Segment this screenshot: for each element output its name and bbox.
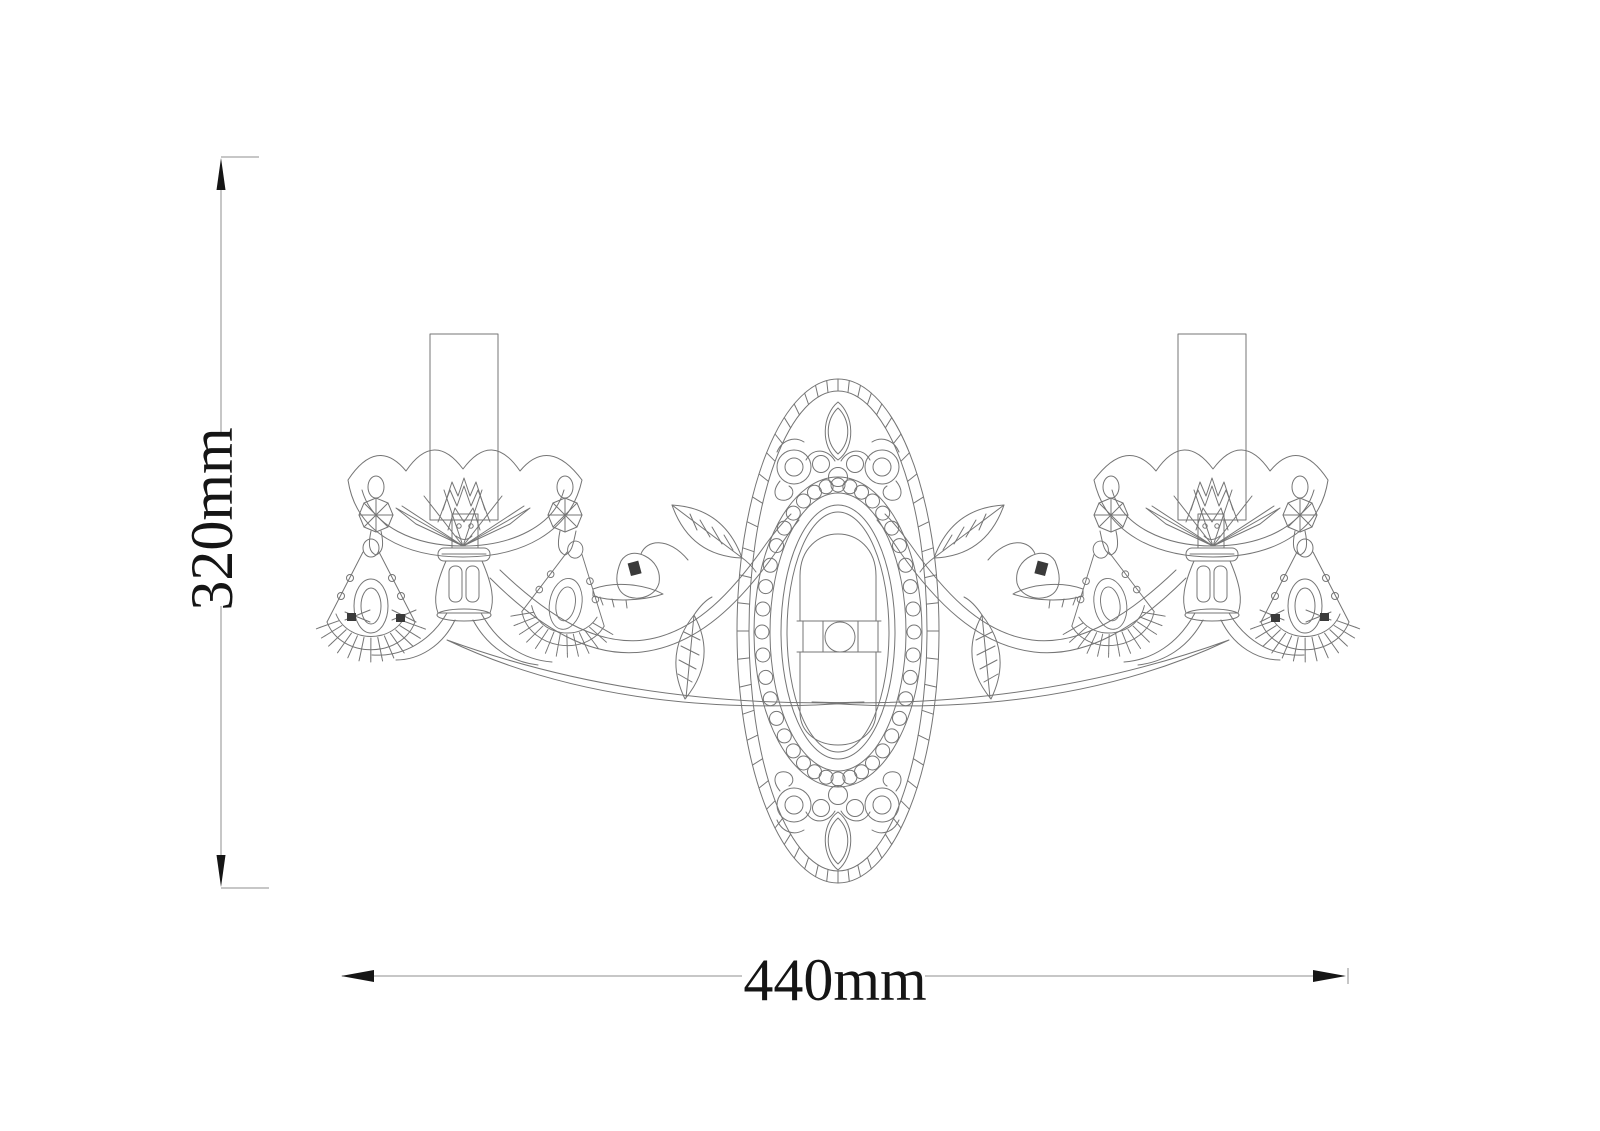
arrowhead-up — [217, 158, 226, 190]
width-dimension-label: 440mm — [743, 947, 926, 1013]
arrowhead-right — [1313, 970, 1346, 982]
ribbed-border — [737, 379, 939, 883]
sconce-dimension-diagram: 320mm 440mm — [0, 0, 1600, 1131]
top-crest-scrolls — [775, 402, 901, 500]
sconce-drawing — [316, 334, 1359, 883]
beaded-ring — [755, 478, 921, 786]
oval-medallion-backplate — [737, 379, 939, 883]
vertical-dimension: 320mm — [179, 157, 269, 888]
horizontal-dimension: 440mm — [341, 947, 1348, 1013]
mounting-band — [797, 621, 881, 652]
technical-drawing-page: 320mm 440mm — [0, 0, 1600, 1131]
height-dimension-label: 320mm — [179, 427, 245, 610]
arrowhead-left — [341, 970, 374, 982]
arrowhead-down — [217, 855, 226, 887]
